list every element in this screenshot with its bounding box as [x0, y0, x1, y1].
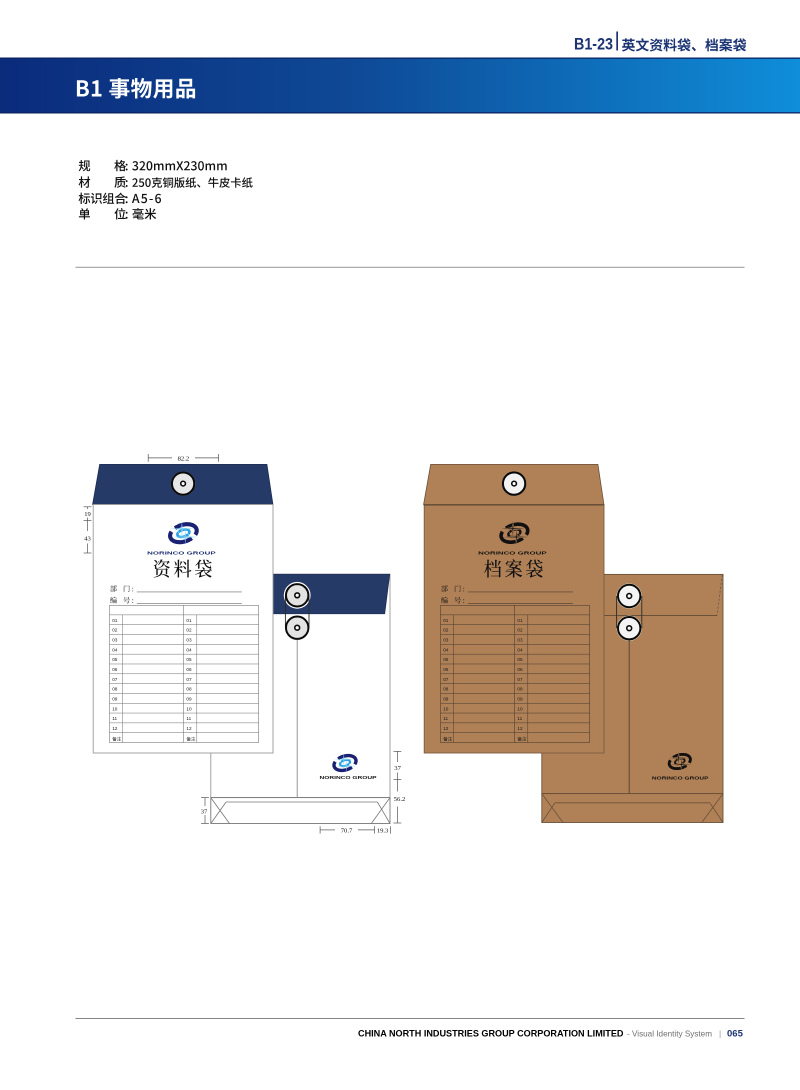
svg-text:- Visual Identity System: - Visual Identity System: [627, 1029, 712, 1038]
svg-text:05: 05: [517, 657, 523, 662]
svg-text:04: 04: [186, 647, 192, 652]
svg-text:02: 02: [443, 628, 449, 633]
svg-text:08: 08: [112, 687, 118, 692]
svg-text:37: 37: [394, 765, 401, 772]
svg-text:10: 10: [112, 706, 118, 711]
svg-text:11: 11: [112, 716, 117, 721]
svg-text:02: 02: [186, 628, 192, 633]
svg-text:09: 09: [443, 696, 449, 701]
svg-text:03: 03: [112, 638, 118, 643]
svg-text:12: 12: [112, 726, 118, 731]
svg-text:02: 02: [517, 628, 523, 633]
svg-text:07: 07: [112, 677, 118, 682]
svg-text:06: 06: [517, 667, 523, 672]
svg-text:NORINCO GROUP: NORINCO GROUP: [652, 775, 709, 780]
svg-text:12: 12: [517, 726, 523, 731]
svg-text:07: 07: [517, 677, 523, 682]
svg-text:09: 09: [517, 696, 523, 701]
svg-text:10: 10: [517, 706, 523, 711]
svg-text:12: 12: [186, 726, 192, 731]
svg-text:11: 11: [517, 716, 522, 721]
svg-text:11: 11: [186, 716, 191, 721]
svg-text:07: 07: [443, 677, 449, 682]
svg-text:01: 01: [186, 618, 192, 623]
svg-text:CHINA NORTH INDUSTRIES GROUP C: CHINA NORTH INDUSTRIES GROUP CORPORATION…: [358, 1028, 624, 1038]
svg-text:03: 03: [443, 638, 449, 643]
svg-text:NORINCO GROUP: NORINCO GROUP: [320, 775, 377, 780]
svg-text:01: 01: [517, 618, 523, 623]
svg-text:01: 01: [112, 618, 118, 623]
svg-text:08: 08: [186, 687, 192, 692]
svg-text:07: 07: [186, 677, 192, 682]
svg-text:08: 08: [517, 687, 523, 692]
svg-text:05: 05: [186, 657, 192, 662]
svg-text:37: 37: [201, 808, 208, 815]
svg-text:05: 05: [112, 657, 118, 662]
svg-text:12: 12: [443, 726, 449, 731]
svg-text:06: 06: [186, 667, 192, 672]
svg-text:06: 06: [112, 667, 118, 672]
svg-text:08: 08: [443, 687, 449, 692]
svg-text:19.3: 19.3: [377, 828, 389, 835]
svg-text:04: 04: [517, 647, 523, 652]
svg-text:82.2: 82.2: [178, 456, 190, 463]
svg-text:NORINCO GROUP: NORINCO GROUP: [478, 550, 547, 555]
svg-text:03: 03: [517, 638, 523, 643]
svg-text:10: 10: [443, 706, 449, 711]
svg-text:11: 11: [443, 716, 448, 721]
svg-text:09: 09: [112, 696, 118, 701]
svg-text:03: 03: [186, 638, 192, 643]
svg-text:NORINCO GROUP: NORINCO GROUP: [147, 550, 216, 555]
svg-text:70.7: 70.7: [341, 828, 353, 835]
svg-text:10: 10: [186, 706, 192, 711]
svg-text:43: 43: [84, 535, 91, 542]
svg-text:05: 05: [443, 657, 449, 662]
svg-text:56.2: 56.2: [394, 796, 406, 803]
svg-text:02: 02: [112, 628, 118, 633]
svg-text:09: 09: [186, 696, 192, 701]
svg-text:|: |: [719, 1029, 721, 1039]
svg-text:B1-23: B1-23: [574, 34, 613, 53]
svg-text:04: 04: [112, 647, 118, 652]
svg-text:01: 01: [443, 618, 449, 623]
svg-text:06: 06: [443, 667, 449, 672]
svg-text:04: 04: [443, 647, 449, 652]
svg-text:19: 19: [84, 511, 91, 518]
svg-text:065: 065: [727, 1028, 744, 1039]
